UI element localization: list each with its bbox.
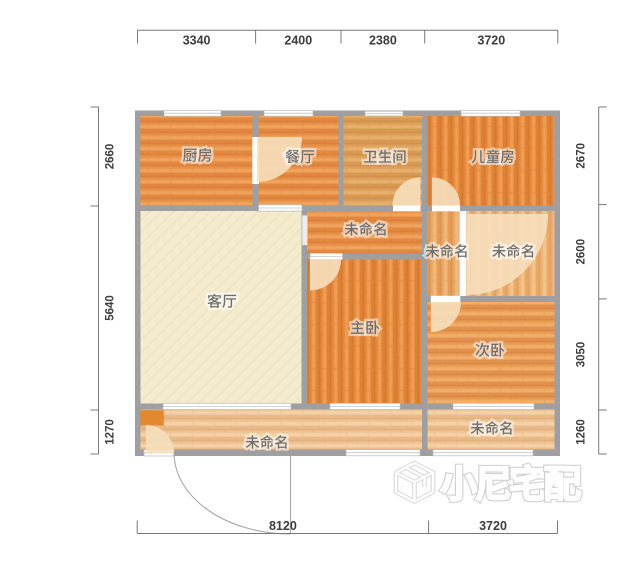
- svg-text:1270: 1270: [105, 419, 117, 445]
- svg-text:2380: 2380: [369, 34, 397, 48]
- svg-text:3720: 3720: [479, 519, 507, 533]
- svg-text:2600: 2600: [576, 239, 588, 265]
- svg-text:3340: 3340: [183, 34, 211, 48]
- svg-text:2660: 2660: [105, 144, 117, 170]
- svg-text:2400: 2400: [284, 34, 312, 48]
- svg-text:5640: 5640: [105, 295, 117, 321]
- svg-text:3720: 3720: [477, 34, 505, 48]
- svg-text:8120: 8120: [269, 519, 297, 533]
- svg-text:1260: 1260: [576, 419, 588, 445]
- svg-text:2670: 2670: [576, 143, 588, 169]
- svg-text:3050: 3050: [576, 342, 588, 368]
